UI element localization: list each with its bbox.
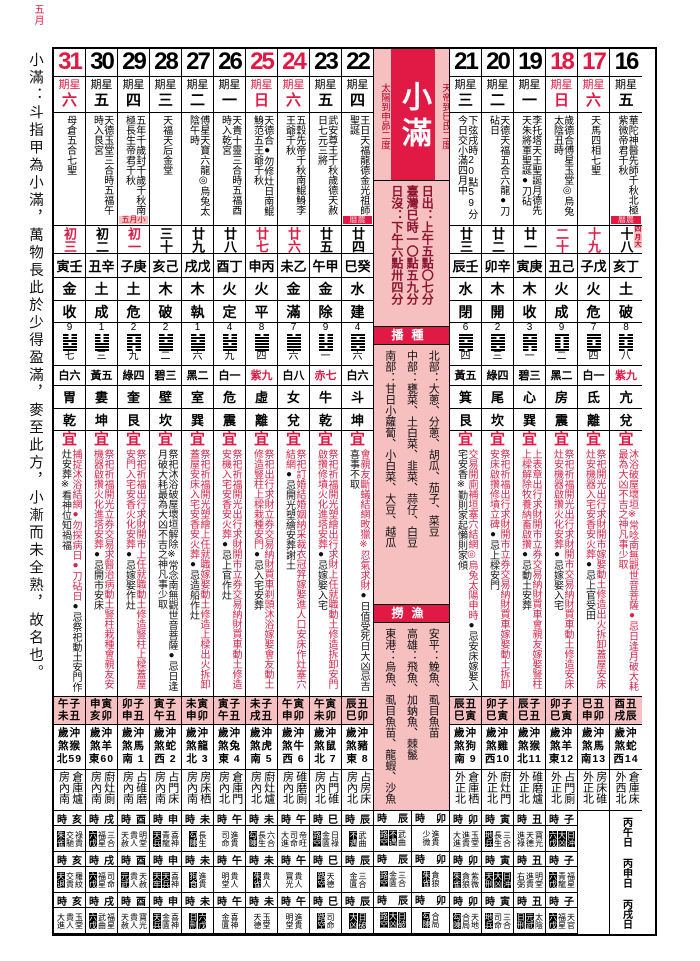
- hours-area: 時丑進祿天德寶光時丑右弼進貴明堂時丑日刑元武太陰: [514, 811, 545, 934]
- suitable-header: 宜: [458, 431, 473, 449]
- hour-branch: 卯: [436, 851, 446, 866]
- hour-star: 日破: [398, 912, 406, 928]
- hour-stars: 天牢天兵喜神: [150, 867, 181, 893]
- hour-star: 司命: [290, 831, 298, 847]
- hour-star: 三合: [503, 831, 511, 847]
- auspicious-hours: 辰丑巳卯: [342, 697, 373, 725]
- ganzhi: 丑辛: [86, 254, 117, 278]
- hour-stars: 天兵金匱喜神: [150, 908, 181, 934]
- clash-cell: 歲沖煞蛇西14: [610, 725, 642, 770]
- hour-word: 時: [153, 852, 163, 867]
- weekday-word: 期星: [551, 80, 573, 91]
- hour-branch: 未: [200, 893, 210, 908]
- hour-word: 時: [217, 811, 227, 826]
- hour-band: 時子六戊福星天官: [546, 893, 577, 934]
- hour-branch: 午: [296, 811, 306, 826]
- hour-word: 時: [485, 852, 495, 867]
- trigram: 離: [246, 409, 277, 431]
- nine-star: 白一: [578, 366, 609, 386]
- officer: 破: [150, 301, 181, 323]
- hour-branch: 戌: [104, 811, 114, 826]
- hour-band: 時巳路空金匱日祿: [310, 811, 341, 852]
- hour-star: 進貴: [462, 831, 470, 847]
- hour-star: 勾陳: [189, 831, 197, 847]
- hour-word: 時: [517, 811, 527, 826]
- hour-star: 狗食: [189, 872, 197, 888]
- ganzhi: 未乙: [278, 254, 309, 278]
- hour-word: 時: [281, 893, 291, 908]
- hour-star: 長生: [494, 831, 502, 847]
- hour-star: 大凶: [389, 912, 397, 928]
- hour-branch: 辰: [398, 810, 408, 825]
- hours-area: 時子六戊大凶日沖時子六戊青龍福星時子六戊福星天官: [546, 811, 577, 934]
- hour-word: 時: [153, 811, 163, 826]
- element: 火: [214, 278, 245, 301]
- hour-branch: 亥: [72, 811, 82, 826]
- weekday-word: 期星: [283, 80, 305, 91]
- hour-stars: 天兵青龍喜神: [150, 826, 181, 852]
- hour-stars: 朱雀貴人: [246, 867, 277, 893]
- hour-star: 紫微: [471, 872, 479, 888]
- suitable-header: 宜: [522, 431, 537, 449]
- fetus-god-text: 倉庫栖外正北: [452, 771, 478, 809]
- suitable-cell: 宜交易開廁補垣塞穴結網◎烏兔太陽申時●忌安床嫁娶入宅安香※勤則家起懶則家傾: [450, 431, 481, 697]
- trigram: 坎: [482, 409, 513, 431]
- hour-star: 不遇: [389, 830, 397, 846]
- weekday-value: 三: [158, 93, 173, 108]
- hour-word: 時: [57, 852, 67, 867]
- festival-cell: 五年千歲封千歲千秋南極長生帝君千秋五月小: [118, 113, 149, 227]
- suitable-cell: 宜祭祀訂婚結婚姻納采裁衣冠笄嫁娶進人口安床作灶塞穴結網●忌開光塑繪安葬謝土: [278, 431, 309, 697]
- hour-star: 長生: [258, 831, 266, 847]
- auspicious-hours: 巳丑申卯: [578, 697, 609, 725]
- hexagram-cn-number: 六: [289, 352, 299, 362]
- hour-stars: 大進貴人玉堂: [54, 908, 85, 934]
- hour-band: 時未勾陳長生: [182, 811, 213, 852]
- hour-word: 時: [249, 893, 259, 908]
- hour-word: 時: [217, 852, 227, 867]
- weekday-cell: 期星六: [54, 77, 85, 113]
- hour-star: 進貴: [198, 872, 206, 888]
- weekday-cell: 期星日: [246, 77, 277, 113]
- hour-star: 寶光: [535, 831, 543, 847]
- element: 火: [246, 278, 277, 301]
- festival-text: 天德玉堂三合時五福午時入艮宮: [91, 113, 111, 223]
- hour-star: 天赦: [121, 913, 129, 929]
- ganzhi: 亥己: [150, 254, 181, 278]
- suitable-cell: 宜祭祀祈福開光出行求財開市立券交易納財買車動土修造安機入宅安香安火葬●忌上官作灶: [214, 431, 245, 697]
- festival-cell: 李托塔天王聖誕月德先天朱將軍聖誕●刀砧: [514, 113, 545, 227]
- weekday-word: 期星: [123, 80, 145, 91]
- hour-word: 時: [377, 892, 387, 907]
- hour-word: 時: [313, 852, 323, 867]
- hour-stars: 勾陳長生: [182, 826, 213, 852]
- festival-text: 下弦戌時20點59分今日交小滿四月中: [455, 113, 475, 223]
- hour-star: 日沖: [503, 872, 511, 888]
- weekday-word: 期星: [455, 80, 477, 91]
- hour-band: 時午明堂貴人: [214, 852, 245, 893]
- hour-word: 時: [121, 852, 131, 867]
- hour-star: 六戊: [89, 872, 97, 888]
- suitable-header: 宜: [190, 431, 205, 449]
- festival-text: 天貴十靈三合時五福酉時入乾宮: [219, 113, 239, 223]
- hour-star: 三合: [107, 831, 115, 847]
- lunar-date: 十九: [578, 226, 609, 254]
- hour-branch: 辰: [360, 852, 370, 867]
- hour-star: 大進: [57, 913, 65, 929]
- lunar-mansion: 尾: [482, 386, 513, 409]
- festival-cell: 母倉五合七聖: [54, 113, 85, 227]
- element: 木: [482, 278, 513, 301]
- hour-star: 天官: [567, 913, 575, 929]
- fetus-god-text: 廚灶廁房內南: [88, 771, 114, 809]
- suitable-header: 宜: [222, 431, 237, 449]
- hour-branch: 申: [168, 811, 178, 826]
- hour-word: 時: [57, 811, 67, 826]
- hour-stars: 六戊青龍福星: [546, 867, 577, 893]
- hour-band: 時寅天刑大凶日沖: [482, 852, 513, 893]
- calendar-tag: 曆農: [343, 216, 372, 225]
- element: 水: [450, 278, 481, 301]
- hour-band: 時午明堂進貴: [278, 893, 309, 934]
- clash-cell: 歲沖煞雞西10: [482, 725, 513, 770]
- hour-stars: 大進進貴玉堂: [450, 826, 481, 852]
- hour-band: 時酉天赦貴人寶光: [118, 893, 149, 934]
- lunar-date: 廿五: [310, 226, 341, 254]
- ganzhi: 亥丁: [610, 254, 642, 278]
- fetus-god-text: 碓磨廁房內北: [280, 771, 306, 809]
- nine-star: 綠四: [118, 366, 149, 386]
- hour-branch: 子: [564, 893, 574, 908]
- suitable-header: 宜: [158, 431, 173, 449]
- ganzhi: 午甲: [310, 254, 341, 278]
- hour-stars: 路空大凶日破: [374, 908, 411, 934]
- festival-text: 武安尊王千秋歲德天赦日七元三將: [315, 113, 335, 223]
- date-number: 17: [578, 49, 609, 77]
- hour-star: 司命: [326, 913, 334, 929]
- hour-word: 時: [89, 811, 99, 826]
- hour-word: 時: [217, 893, 227, 908]
- hour-word: 時: [345, 811, 355, 826]
- hour-star: 日刑: [189, 913, 197, 929]
- festival-text: 天馬四相七聖: [588, 113, 598, 223]
- hour-branch: 辰: [360, 811, 370, 826]
- hour-branch: 卯: [468, 893, 478, 908]
- hour-word: 時: [453, 893, 463, 908]
- hour-band: 時酉天赦貴人明堂: [118, 811, 149, 852]
- weekday-word: 期星: [155, 80, 177, 91]
- weekday-value: 二: [190, 93, 205, 108]
- date-number: 21: [450, 49, 481, 77]
- officer: 危: [578, 301, 609, 323]
- auspicious-hours: 未寅申卯: [182, 697, 213, 725]
- weekday-value: 一: [522, 93, 537, 108]
- hour-stars: 路空天德: [310, 867, 341, 893]
- hexagram-cn-number: 四: [461, 352, 471, 362]
- suitable-header: 宜: [586, 431, 601, 449]
- hour-branch: 丑: [532, 811, 542, 826]
- day-column-17: 17 期星六 天馬四相七聖 十九 子戊 火 危 7四 白一 氐 離 宜祭祀開光出…: [578, 49, 610, 934]
- lunar-date: 廿三: [450, 226, 481, 254]
- hour-star: 天德: [326, 872, 334, 888]
- calendar-tag: 曆農: [611, 216, 641, 225]
- hour-stars: 不遇武曲: [342, 826, 373, 852]
- weekday-value: 五: [94, 93, 109, 108]
- fetus-god-cell: 倉庫門房內北: [214, 770, 245, 812]
- hour-star: 朱雀: [422, 871, 430, 887]
- fetus-god-cell: 碓磨爐外正北: [514, 770, 545, 812]
- hexagram-icon: [351, 334, 365, 351]
- hour-star: 福星: [98, 831, 106, 847]
- hexagram-number: 8: [259, 323, 265, 333]
- hour-word: 時: [281, 852, 291, 867]
- day-column-20: 20 期星二 天德天福五合六龍●刀砧日 廿二 卯辛 木 開 2三 綠四 尾 坎 …: [482, 49, 514, 934]
- suitable-header: 宜: [62, 431, 77, 449]
- hour-star: 金匱: [162, 913, 170, 929]
- suitable-header: 宜: [318, 431, 333, 449]
- trigram: 巽: [514, 409, 545, 431]
- hour-branch: 申: [168, 893, 178, 908]
- hour-branch: 丑: [532, 893, 542, 908]
- fish-line: 安平：鮸魚、虱目魚苗: [427, 628, 439, 810]
- hexagram-number: 4: [227, 323, 233, 333]
- officer: 執: [182, 301, 213, 323]
- ganzhi: 卯辛: [482, 254, 513, 278]
- hours-area: 時寅地兵長生三合時寅天刑大凶日沖時寅地兵司命三合: [482, 811, 513, 934]
- hour-star: 勾陳: [453, 913, 461, 929]
- sun-time-line: 日沒：下午六點卅四分: [390, 185, 403, 326]
- hexagram-icon: [223, 334, 237, 351]
- hour-word: 時: [549, 852, 559, 867]
- hour-star: 祿貴: [75, 831, 83, 847]
- hour-star: 明堂: [285, 913, 293, 929]
- hour-branch: 未: [264, 811, 274, 826]
- trigram: 震: [214, 409, 245, 431]
- hour-star: 日祿: [331, 831, 339, 847]
- hour-star: 六戊: [198, 913, 206, 929]
- hour-band: 時午金匱喜神: [214, 893, 245, 934]
- lunar-date: 二十: [546, 226, 577, 254]
- weekday-value: 六: [586, 93, 601, 108]
- hour-band: 時卯大進進貴玉堂: [450, 811, 481, 852]
- hour-branch: 子: [564, 811, 574, 826]
- weekday-word: 期星: [91, 80, 113, 91]
- clash-cell: 歲沖煞馬南 1: [118, 725, 149, 770]
- date-number: 30: [86, 49, 117, 77]
- hour-band: 時丑右弼進貴明堂: [514, 852, 545, 893]
- hour-star: 天地: [471, 913, 479, 929]
- hours-area: 時辰不遇武曲時辰金匱三合時辰大凶日破: [342, 811, 373, 934]
- suitable-cell: 宜上表章出行求財開市立券交易納財買車會親友嫁娶豎柱上樑解除牧養納畜啟攢●忌動土安…: [514, 431, 545, 697]
- hour-star: 天赦: [121, 831, 129, 847]
- hour-star: 交貴: [66, 872, 74, 888]
- weekday-word: 期星: [487, 80, 509, 91]
- festival-cell: 天貴十靈三合時五福酉時入乾宮: [214, 113, 245, 227]
- ganzhi: 子戊: [578, 254, 609, 278]
- weekday-word: 期星: [251, 80, 273, 91]
- hours-area: 時午大進司命帝旺時午寶光貴人時午明堂進貴: [278, 811, 309, 934]
- hour-stars: 金匱三合: [342, 867, 373, 893]
- fetus-god-cell: 廚灶門外正北: [482, 770, 513, 812]
- officer: 平: [246, 301, 277, 323]
- hexagram-icon: [555, 334, 569, 351]
- hour-band: 時子六戊青龍福星: [546, 852, 577, 893]
- hour-word: 時: [485, 893, 495, 908]
- clash-cell: 歲沖煞羊東60: [86, 725, 117, 770]
- hour-star: 三合: [398, 871, 406, 887]
- hour-star: 天牢: [153, 872, 161, 888]
- hour-branch: 子: [564, 852, 574, 867]
- hour-band: 時辰路空大凶日破: [374, 893, 411, 934]
- hexagram-icon: [191, 334, 205, 351]
- auspicious-hours: 卯子巳寅: [546, 697, 577, 725]
- hour-star: 帝旺: [299, 831, 307, 847]
- suitable-text: 祭祀祈福出行求財開市立券交易納財買車嫁娶動土拆卸安床啟攢修墳立碑●忌上樑安門: [487, 449, 508, 695]
- weekday-word: 期星: [347, 80, 369, 91]
- lunar-date: 初三: [54, 226, 85, 254]
- festival-cell: 王日天福龍德金光祖師聖誕曆農: [342, 113, 373, 227]
- suitable-header: 宜: [490, 431, 505, 449]
- weekday-cell: 期星五: [310, 77, 341, 113]
- suitable-cell: 宜會親友斷蟻結網畋獵※忍氣求財●日值受死日大凶忌吉喜事不取: [342, 431, 373, 697]
- hexagram-cn-number: 九: [225, 352, 235, 362]
- hour-star: 路空: [380, 912, 388, 928]
- hour-star: 路空: [313, 831, 321, 847]
- hour-star: 貴人: [130, 913, 138, 929]
- lunar-mansion: 亢: [610, 386, 642, 409]
- officer: 除: [310, 301, 341, 323]
- hexagram-icon: [255, 334, 269, 351]
- weekday-value: 三: [458, 93, 473, 108]
- hour-day-label: 丙午日: [619, 817, 634, 847]
- date-number: 31: [54, 49, 85, 77]
- festival-cell: 五穀先帝千秋南鯤鯓李王爺千秋: [278, 113, 309, 227]
- weekday-value: 六: [286, 93, 301, 108]
- hour-stars: 天退交貴羅紋: [54, 867, 85, 893]
- lunar-mansion: 婁: [86, 386, 117, 409]
- hexagram-cell: 9二: [546, 323, 577, 366]
- suitable-cell: 宜祭祀祈福開光塑繪出行求財上任就職動土修造拆卸安門啟攢修墳火化進塔安葬●忌嫁娶入…: [310, 431, 341, 697]
- hour-star: 福星: [558, 913, 566, 929]
- festival-cell: 傅星天寶六龍◎烏兔太陰午時: [182, 113, 213, 227]
- hour-star: 地兵: [485, 913, 493, 929]
- hour-band: 時亥天退交貴羅紋: [54, 852, 85, 893]
- nine-star: 白一: [214, 366, 245, 386]
- weekday-cell: 期星五: [610, 77, 642, 113]
- festival-text: 母倉五合七聖: [64, 113, 74, 223]
- festival-text: 王日天福龍德金光祖師聖誕: [347, 113, 367, 223]
- hours-area: 時亥朱雀交馳祿貴時亥天退交貴羅紋時亥大進貴人玉堂: [54, 811, 85, 934]
- element: 金: [278, 278, 309, 301]
- hour-word: 時: [345, 852, 355, 867]
- hexagram-number: 7: [591, 323, 597, 333]
- date-number: 29: [118, 49, 149, 77]
- festival-text: 傅星天寶六龍◎烏兔太陰午時: [187, 113, 207, 223]
- hour-star: 右弼: [517, 872, 525, 888]
- fetus-god-cell: 占碓磨房內南: [118, 770, 149, 812]
- sunrise-sunset: 日出：上午五點〇七分臺灣巳時一〇點五九分日沒：下午六點卅四分: [374, 181, 449, 327]
- hour-star: 元武: [121, 872, 129, 888]
- festival-cell: 天馬四相七聖: [578, 113, 609, 227]
- clash-cell: 歲沖煞龍北 3: [182, 725, 213, 770]
- hour-word: 時: [485, 811, 495, 826]
- hour-star: 勾陳: [422, 912, 430, 928]
- date-number: 28: [150, 49, 181, 77]
- fetus-god-text: 占門床房內南: [152, 771, 178, 809]
- hour-star: 明堂: [221, 872, 229, 888]
- festival-text: 五年千歲封千歲千秋南極長生帝君千秋: [123, 113, 143, 223]
- suitable-text: 祭祀訂婚結婚姻納采裁衣冠笄嫁娶進人口安床作灶塞穴結網●忌開光塑繪安葬謝土: [283, 449, 304, 695]
- lunar-mansion: 壁: [150, 386, 181, 409]
- ganzhi: 酉丁: [214, 254, 245, 278]
- hour-star: 勾陳: [249, 831, 257, 847]
- hour-star: 進貴: [230, 831, 238, 847]
- ganzhi: 子庚: [118, 254, 149, 278]
- hour-stars: 明堂貴人: [214, 867, 245, 893]
- hour-stars: 日刑六戊: [182, 908, 213, 934]
- officer: 成: [86, 301, 117, 323]
- hour-star: 金匱: [349, 872, 357, 888]
- hour-star: 路空: [317, 872, 325, 888]
- weekday-cell: 期星三: [450, 77, 481, 113]
- hour-stars: 路空金匱日祿: [310, 826, 341, 852]
- suitable-cell: 宜祭祀出行求財立券交易納財買車剃頭沐浴嫁娶會友動土修造豎柱上樑栽種安門●忌入宅安…: [246, 431, 277, 697]
- hour-day-label: 丙申日: [619, 858, 634, 888]
- hexagram-cell: 2三: [482, 323, 513, 366]
- hour-stars: 元武貴人天赦: [118, 867, 149, 893]
- hour-stars: 路空金匱三合: [374, 867, 411, 893]
- weekday-value: 六: [62, 93, 77, 108]
- lunar-date: 廿一: [514, 226, 545, 254]
- fetus-god-cell: 倉庫栖外正北: [450, 770, 481, 812]
- day-column-30: 30 期星五 天德玉堂三合時五福午時入艮宮 初二 丑辛 土 成 1三 黃五 婁 …: [86, 49, 118, 934]
- hour-star: 大進: [453, 831, 461, 847]
- suitable-cell: 宜祭祀祈福開光塑繪上任就職嫁娶動土修造上樑出火拆卸蓋屋安床入宅安香安火葬●忌造船…: [182, 431, 213, 697]
- date-number: 27: [182, 49, 213, 77]
- hexagram-icon: [127, 334, 141, 351]
- weekday-cell: 期星日: [546, 77, 577, 113]
- hour-star: 武曲: [398, 830, 406, 846]
- hour-word: 時: [377, 851, 387, 866]
- ganzhi: 巳癸: [342, 254, 373, 278]
- hour-band: 時卯勾陳合局: [412, 893, 449, 934]
- nine-star: 紫九: [610, 366, 642, 386]
- auspicious-hours: 辰丑巳寅: [450, 697, 481, 725]
- fish-line: 東港：烏魚、虱目魚苗、龍蝦、沙魚: [384, 628, 396, 810]
- hour-word: 時: [517, 852, 527, 867]
- hexagram-cell: 3一: [514, 323, 545, 366]
- festival-text: 李托塔天王聖誕月德先天朱將軍聖誕●刀砧: [519, 113, 539, 223]
- hour-word: 時: [345, 893, 355, 908]
- hexagram-number: 9: [323, 323, 329, 333]
- hexagram-cell: 1六: [182, 323, 213, 366]
- corner-month-label: 五月: [30, 4, 45, 26]
- element: 土: [610, 278, 642, 301]
- hour-star: 武曲: [358, 831, 366, 847]
- weekday-cell: 期星一: [514, 77, 545, 113]
- weekday-cell: 期星五: [86, 77, 117, 113]
- festival-cell: 天福天后金堂: [150, 113, 181, 227]
- suitable-cell: 宜祭祀祈福出行求財開市上任就職動土修造豎柱上樑蓋屋安門入宅安香火化安葬●忌嫁娶作…: [118, 431, 149, 697]
- hour-stars: 勾陳合局天地: [450, 908, 481, 934]
- hour-star: 大凶: [494, 872, 502, 888]
- hour-band: 時辰不遇武曲: [342, 811, 373, 852]
- auspicious-hours: 午寅申卯: [278, 697, 309, 725]
- day-column-28: 28 期星三 天福天后金堂 三十 亥己 木 破 2二 碧三 壁 坎 宜祭祀沐浴破…: [150, 49, 182, 934]
- hour-stars: 路空司命: [310, 908, 341, 934]
- fetus-god-cell: 房床碓外正北: [578, 770, 609, 812]
- ganzhi: 丑己: [546, 254, 577, 278]
